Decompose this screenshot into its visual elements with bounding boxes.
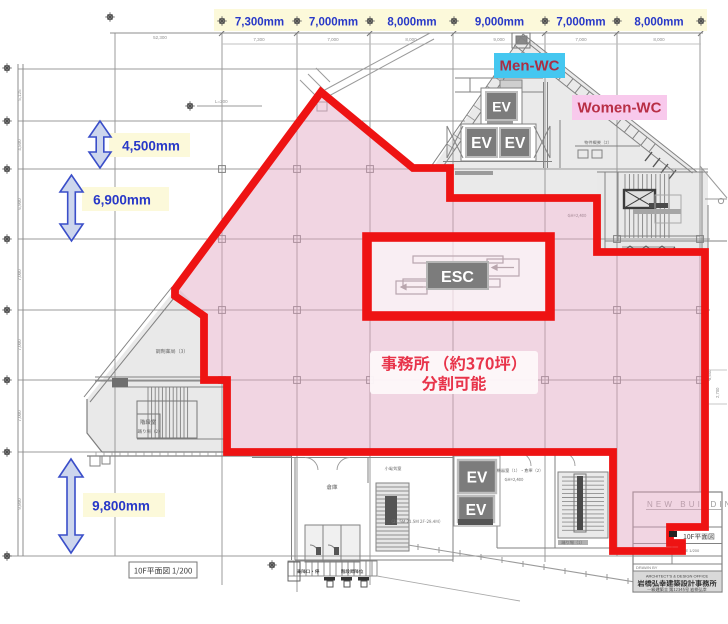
svg-text:EV: EV	[505, 135, 526, 152]
svg-text:9,800mm: 9,800mm	[92, 499, 150, 514]
svg-text:EV: EV	[467, 470, 488, 487]
svg-text:ARCHITECT'S & DESIGN OFFICE: ARCHITECT'S & DESIGN OFFICE	[646, 574, 709, 579]
svg-text:7,000: 7,000	[17, 269, 22, 281]
svg-text:7,000: 7,000	[17, 410, 22, 422]
svg-text:ESC: ESC	[441, 269, 474, 286]
svg-text:4,500: 4,500	[17, 139, 22, 151]
svg-text:EV: EV	[466, 502, 487, 519]
svg-text:7,000mm: 7,000mm	[556, 17, 605, 29]
svg-text:Men-WC: Men-WC	[500, 58, 560, 75]
svg-text:8,000: 8,000	[653, 37, 665, 42]
svg-text:DRAWN BY: DRAWN BY	[636, 565, 658, 570]
svg-text:EV: EV	[471, 135, 492, 152]
svg-text:7,000mm: 7,000mm	[309, 17, 358, 29]
svg-text:5,125: 5,125	[17, 89, 22, 101]
svg-text:52,300: 52,300	[153, 35, 167, 40]
svg-text:7,300: 7,300	[253, 37, 265, 42]
svg-text:7,000: 7,000	[17, 339, 22, 351]
svg-text:7,000: 7,000	[327, 37, 339, 42]
svg-text:L=200: L=200	[215, 99, 228, 104]
svg-text:9,800: 9,800	[17, 498, 22, 510]
svg-text:8,000mm: 8,000mm	[634, 17, 683, 29]
svg-text:Women-WC: Women-WC	[578, 100, 662, 117]
svg-text:EV: EV	[492, 99, 511, 115]
svg-text:6,900mm: 6,900mm	[93, 193, 151, 208]
svg-text:4,500mm: 4,500mm	[122, 139, 180, 154]
svg-text:9,000mm: 9,000mm	[475, 17, 524, 29]
svg-text:9,000: 9,000	[493, 37, 505, 42]
svg-text:2,700: 2,700	[715, 387, 720, 398]
svg-text:7,300mm: 7,300mm	[235, 17, 284, 29]
svg-text:8,000mm: 8,000mm	[387, 17, 436, 29]
svg-text:7,000: 7,000	[575, 37, 587, 42]
svg-text:6,900: 6,900	[17, 198, 22, 210]
